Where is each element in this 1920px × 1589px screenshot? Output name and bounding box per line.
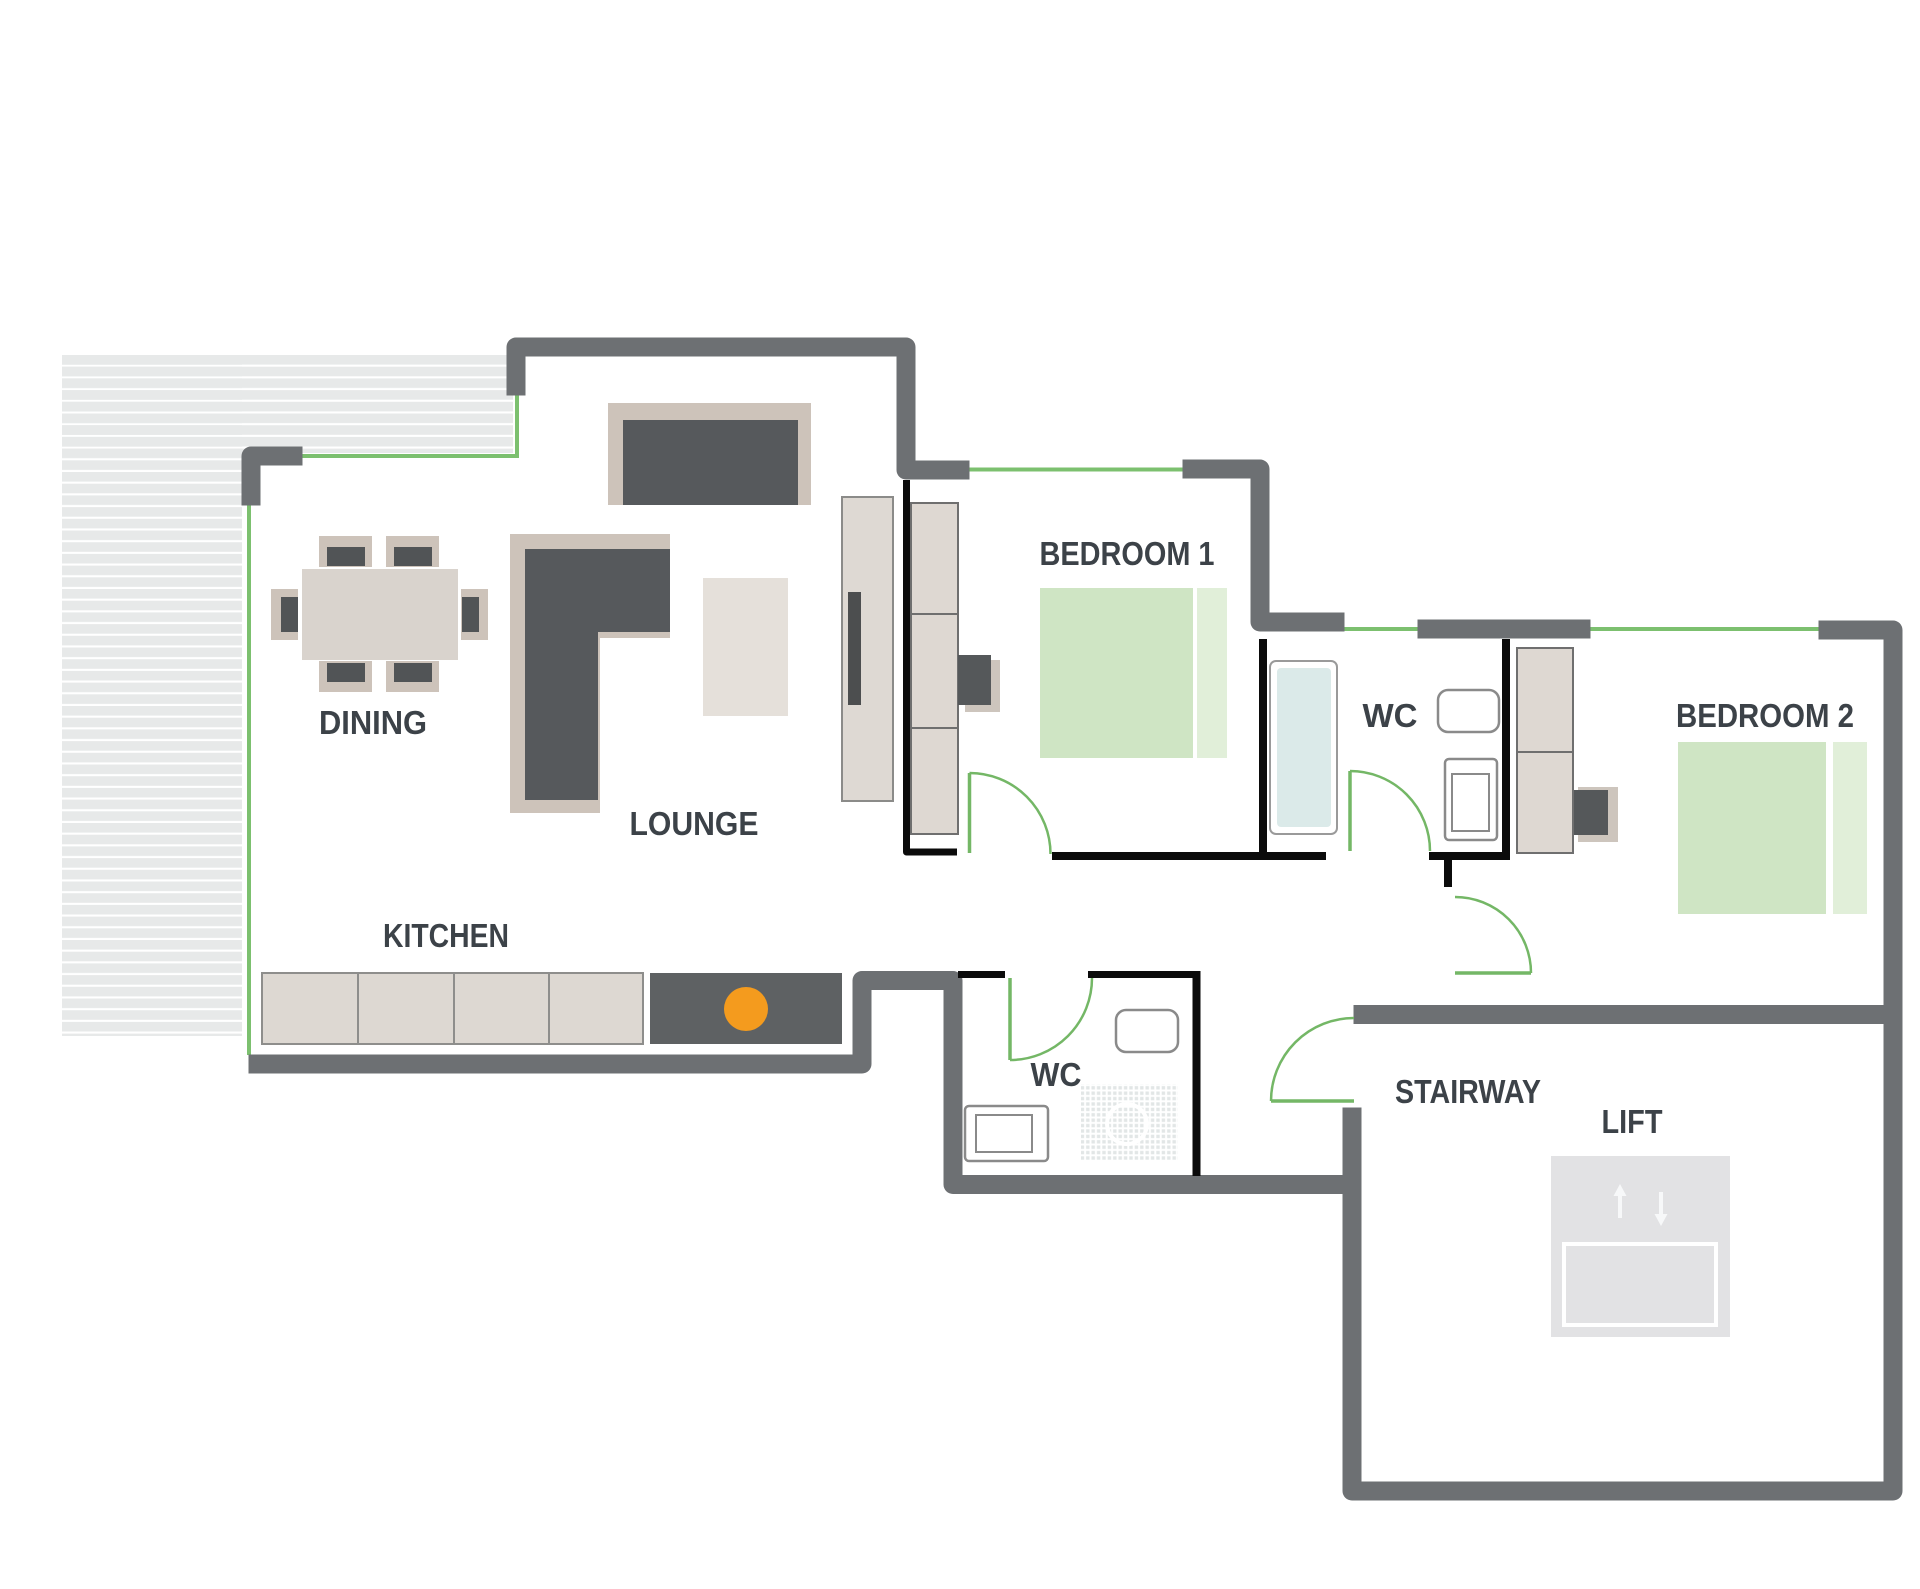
svg-text:LIFT: LIFT <box>1602 1103 1663 1140</box>
svg-text:STAIRWAY: STAIRWAY <box>1395 1073 1541 1110</box>
svg-text:BEDROOM 1: BEDROOM 1 <box>1040 535 1215 572</box>
svg-text:DINING: DINING <box>319 704 427 741</box>
svg-text:BEDROOM 2: BEDROOM 2 <box>1676 697 1854 734</box>
svg-text:WC: WC <box>1363 697 1418 734</box>
svg-text:KITCHEN: KITCHEN <box>383 917 509 954</box>
svg-text:WC: WC <box>1031 1056 1082 1093</box>
svg-text:LOUNGE: LOUNGE <box>630 805 759 842</box>
